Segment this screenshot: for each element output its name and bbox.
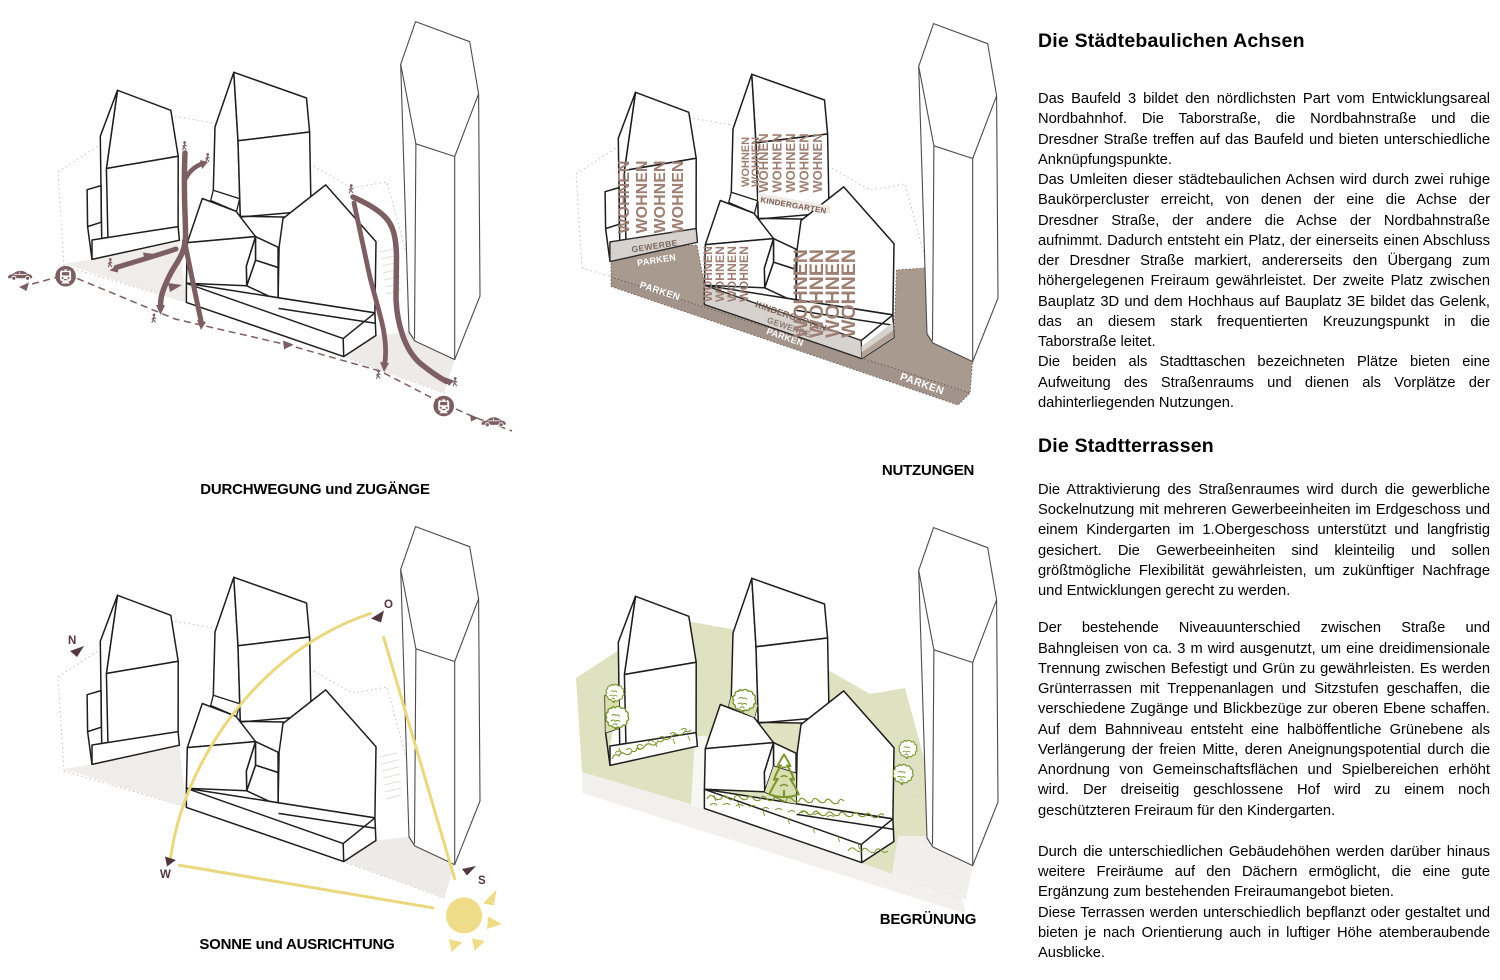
svg-text:WOHNEN: WOHNEN: [737, 246, 751, 302]
svg-text:O: O: [384, 599, 393, 611]
svg-text:WOHNEN: WOHNEN: [810, 133, 825, 192]
svg-text:WOHNEN: WOHNEN: [652, 161, 669, 234]
svg-text:DURCHWEGUNG und ZUGÄNGE: DURCHWEGUNG und ZUGÄNGE: [200, 481, 430, 498]
svg-text:WOHNEN: WOHNEN: [838, 249, 860, 338]
svg-text:WOHNEN: WOHNEN: [616, 161, 633, 234]
svg-text:N: N: [68, 635, 76, 647]
svg-text:SONNE und AUSRICHTUNG: SONNE und AUSRICHTUNG: [199, 936, 394, 953]
svg-text:W: W: [160, 869, 171, 881]
svg-text:S: S: [478, 875, 486, 887]
svg-text:NUTZUNGEN: NUTZUNGEN: [882, 462, 974, 479]
svg-text:WOHNEN: WOHNEN: [670, 161, 687, 234]
svg-text:WOHNEN: WOHNEN: [634, 161, 651, 234]
svg-text:BEGRÜNUNG: BEGRÜNUNG: [880, 911, 977, 928]
